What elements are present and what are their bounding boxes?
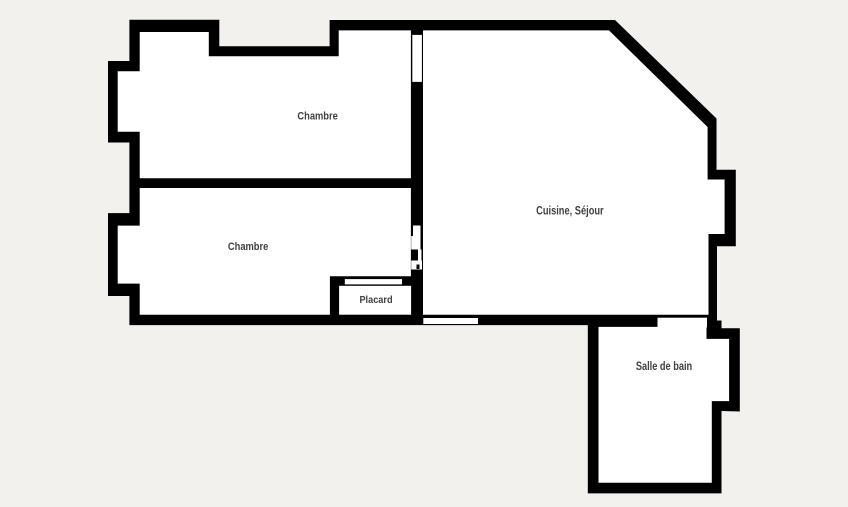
svg-text:Placard: Placard — [359, 295, 392, 306]
svg-text:Salle de bain: Salle de bain — [636, 359, 692, 373]
svg-text:Cuisine, Séjour: Cuisine, Séjour — [536, 205, 604, 218]
svg-text:Chambre: Chambre — [297, 111, 337, 123]
svg-text:Chambre: Chambre — [228, 241, 268, 253]
